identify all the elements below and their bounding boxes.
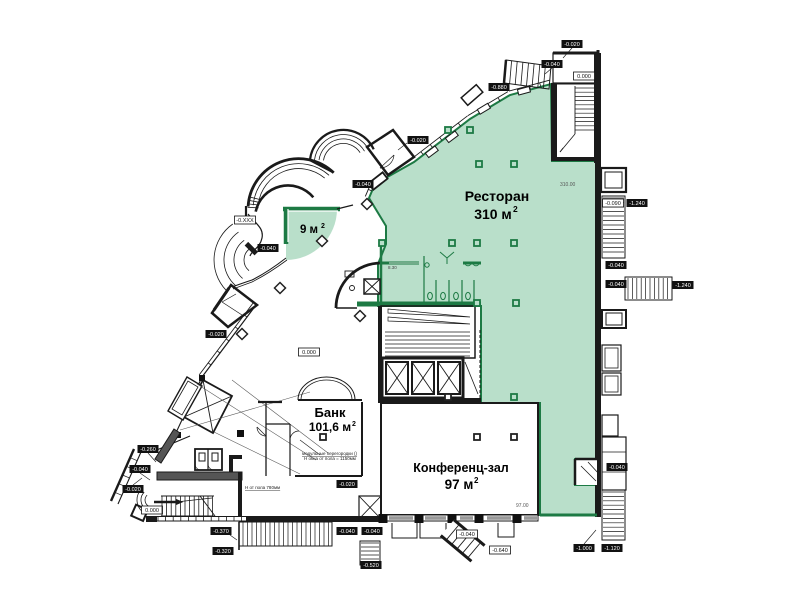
svg-text:-0.020: -0.020 <box>339 482 355 488</box>
svg-text:Н от пола 780мм: Н от пола 780мм <box>245 485 280 490</box>
svg-text:-0.040: -0.040 <box>459 532 475 538</box>
svg-text:-0.370: -0.370 <box>213 529 229 535</box>
svg-text:-0.020: -0.020 <box>564 42 580 48</box>
svg-text:9 м: 9 м <box>300 224 318 236</box>
svg-text:-1.240: -1.240 <box>629 201 645 207</box>
svg-text:0.000: 0.000 <box>145 508 159 514</box>
svg-text:-0.040: -0.040 <box>260 246 276 252</box>
svg-text:101,6 м: 101,6 м <box>309 420 351 434</box>
svg-text:-0.040: -0.040 <box>609 465 625 471</box>
svg-text:Н окна от пола = 1150мм: Н окна от пола = 1150мм <box>304 456 356 461</box>
svg-text:-1.240: -1.240 <box>675 283 691 289</box>
svg-text:2: 2 <box>513 204 518 214</box>
svg-text:0.000: 0.000 <box>302 350 316 356</box>
svg-text:2: 2 <box>321 223 325 230</box>
svg-text:-0.040: -0.040 <box>608 263 624 269</box>
svg-text:Банк: Банк <box>315 405 346 420</box>
svg-text:Ресторан: Ресторан <box>465 188 529 204</box>
svg-text:-0.880: -0.880 <box>491 85 507 91</box>
svg-text:97 м: 97 м <box>445 477 474 492</box>
svg-text:-0.XXX: -0.XXX <box>236 218 254 224</box>
svg-text:-1.120: -1.120 <box>604 546 620 552</box>
svg-text:8.30: 8.30 <box>388 265 397 270</box>
svg-text:-0.640: -0.640 <box>492 548 508 554</box>
svg-text:-0.020: -0.020 <box>410 138 426 144</box>
svg-text:-0.520: -0.520 <box>363 563 379 569</box>
svg-text:-0.040: -0.040 <box>339 529 355 535</box>
svg-text:-0.020: -0.020 <box>208 332 224 338</box>
svg-text:-0.040: -0.040 <box>132 467 148 473</box>
svg-text:-0.320: -0.320 <box>215 549 231 555</box>
svg-text:0.000: 0.000 <box>577 74 591 80</box>
svg-text:-0.020: -0.020 <box>125 487 141 493</box>
svg-text:310 м: 310 м <box>474 206 512 222</box>
svg-text:-1.000: -1.000 <box>576 546 592 552</box>
svg-text:-0.040: -0.040 <box>364 529 380 535</box>
svg-text:-0.090: -0.090 <box>605 201 621 207</box>
svg-text:2: 2 <box>352 421 356 428</box>
svg-text:310.00: 310.00 <box>560 182 576 188</box>
svg-text:2: 2 <box>474 476 479 485</box>
svg-text:97.00: 97.00 <box>516 503 529 509</box>
svg-text:-0.040: -0.040 <box>608 282 624 288</box>
svg-text:-0.040: -0.040 <box>544 62 560 68</box>
svg-text:Конференц-зал: Конференц-зал <box>413 461 509 475</box>
svg-text:-0.040: -0.040 <box>355 182 371 188</box>
svg-text:-0.260: -0.260 <box>140 447 156 453</box>
